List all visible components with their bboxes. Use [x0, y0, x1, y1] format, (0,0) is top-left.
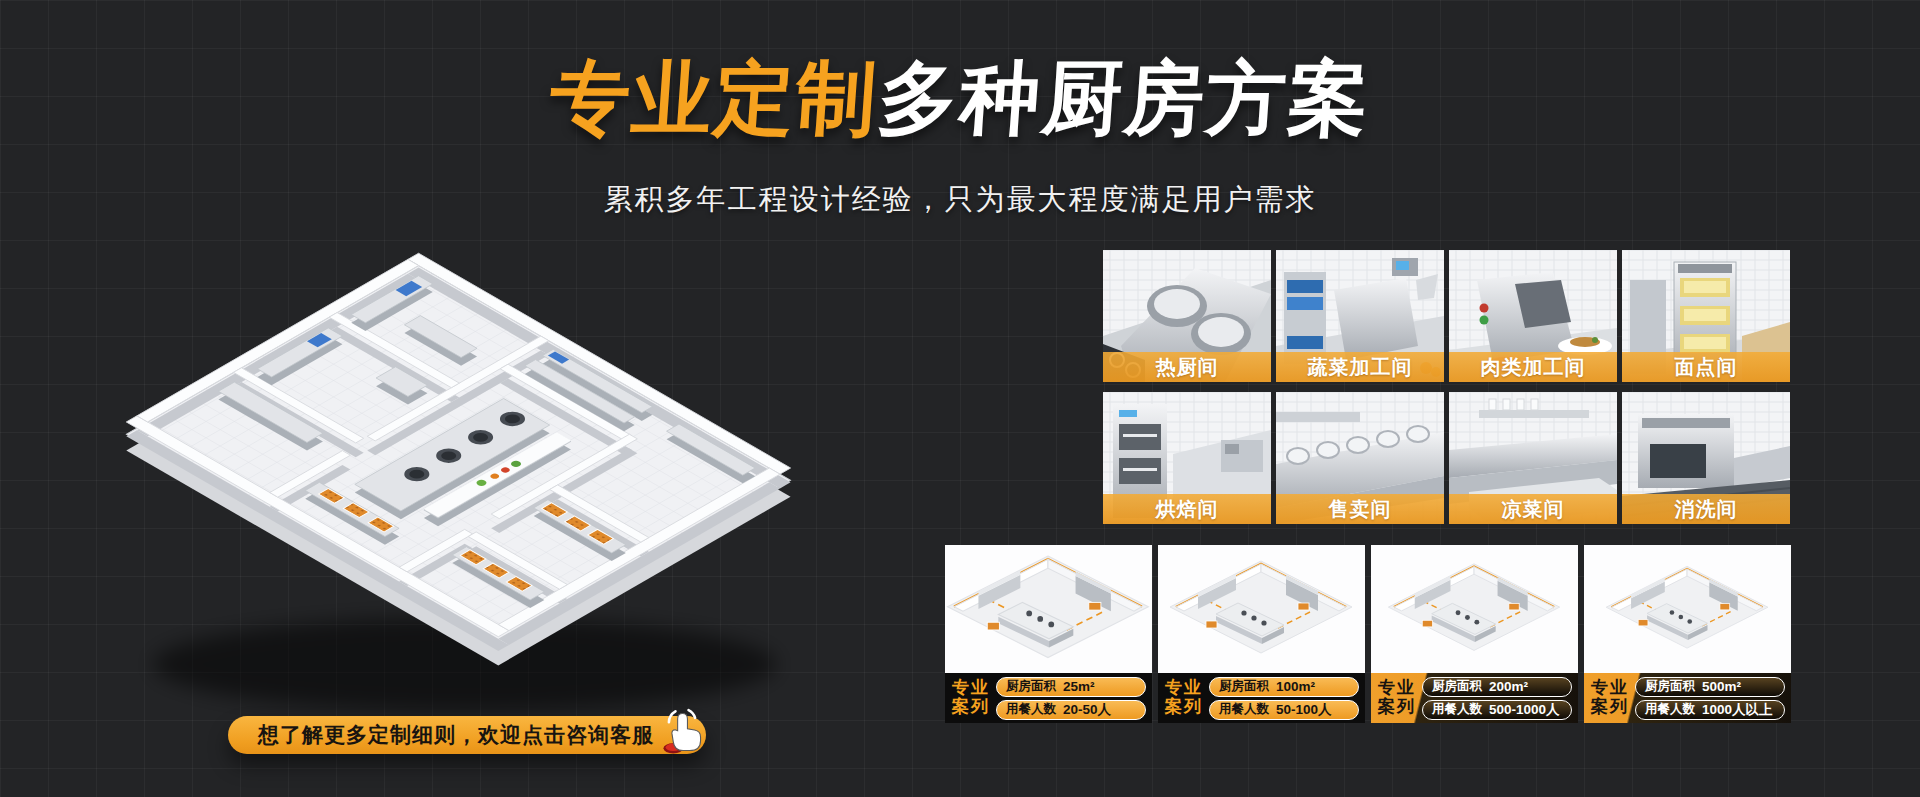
room-tile-label: 烘焙间: [1103, 494, 1271, 524]
diners-pill: 用餐人数 20-50人: [996, 700, 1146, 720]
case-kitchen-illustration: [945, 545, 1152, 673]
title-highlight: 专业定制: [547, 54, 881, 143]
room-tile-hot-kitchen: 热厨间: [1103, 250, 1271, 382]
room-tile-vegetable-processing: 蔬菜加工间: [1276, 250, 1444, 382]
kitchen-area-pill: 厨房面积 25m²: [996, 677, 1146, 697]
case-badge: 专业 案列: [1165, 679, 1203, 716]
case-strip: 专业 案列 厨房面积 25m² 用餐人数 20-50人: [945, 673, 1152, 723]
room-types-grid: 热厨间 蔬菜加工间: [1103, 250, 1790, 524]
contact-service-label: 想了解更多定制细则，欢迎点击咨询客服: [258, 721, 654, 749]
room-tile-label: 面点间: [1622, 352, 1790, 382]
case-card-25m2: 专业 案列 厨房面积 25m² 用餐人数 20-50人: [945, 545, 1152, 723]
case-badge: 专业 案列: [1378, 679, 1416, 716]
page-title: 专业定制多种厨房方案: [0, 46, 1920, 154]
kitchen-area-pill: 厨房面积 500m²: [1635, 677, 1785, 697]
case-badge: 专业 案列: [1591, 679, 1629, 716]
case-badge: 专业 案列: [952, 679, 990, 716]
case-cards-row: 专业 案列 厨房面积 25m² 用餐人数 20-50人: [945, 545, 1791, 723]
case-card-200m2: 专业 案列 厨房面积 200m² 用餐人数 500-1000人: [1371, 545, 1578, 723]
title-rest: 多种厨房方案: [875, 54, 1373, 143]
diners-pill: 用餐人数 500-1000人: [1422, 700, 1572, 720]
room-tile-meat-processing: 肉类加工间: [1449, 250, 1617, 382]
diners-pill: 用餐人数 1000人以上: [1635, 700, 1785, 720]
room-tile-label: 热厨间: [1103, 352, 1271, 382]
room-tile-label: 肉类加工间: [1449, 352, 1617, 382]
case-kitchen-illustration: [1158, 545, 1365, 673]
room-tile-pastry: 面点间: [1622, 250, 1790, 382]
room-tile-cold-dish: 凉菜间: [1449, 392, 1617, 524]
diners-pill: 用餐人数 50-100人: [1209, 700, 1359, 720]
room-tile-label: 凉菜间: [1449, 494, 1617, 524]
room-tile-label: 售卖间: [1276, 494, 1444, 524]
room-tile-sales: 售卖间: [1276, 392, 1444, 524]
kitchen-area-pill: 厨房面积 100m²: [1209, 677, 1359, 697]
case-card-500m2: 专业 案列 厨房面积 500m² 用餐人数 1000人以上: [1584, 545, 1791, 723]
case-kitchen-illustration: [1584, 545, 1791, 673]
case-kitchen-illustration: [1371, 545, 1578, 673]
room-tile-label: 蔬菜加工间: [1276, 352, 1444, 382]
kitchen-floorplan-illustration: [122, 202, 797, 734]
room-tile-baking: 烘焙间: [1103, 392, 1271, 524]
case-strip: 专业 案列 厨房面积 100m² 用餐人数 50-100人: [1158, 673, 1365, 723]
contact-service-button[interactable]: 想了解更多定制细则，欢迎点击咨询客服: [228, 716, 706, 754]
case-strip: 专业 案列 厨房面积 200m² 用餐人数 500-1000人: [1371, 673, 1578, 723]
hand-click-icon: [660, 708, 704, 756]
case-strip: 专业 案列 厨房面积 500m² 用餐人数 1000人以上: [1584, 673, 1791, 723]
room-tile-washing: 消洗间: [1622, 392, 1790, 524]
room-tile-label: 消洗间: [1622, 494, 1790, 524]
kitchen-solutions-banner: 专业定制多种厨房方案 累积多年工程设计经验，只为最大程度满足用户需求: [0, 0, 1920, 797]
kitchen-area-pill: 厨房面积 200m²: [1422, 677, 1572, 697]
case-card-100m2: 专业 案列 厨房面积 100m² 用餐人数 50-100人: [1158, 545, 1365, 723]
